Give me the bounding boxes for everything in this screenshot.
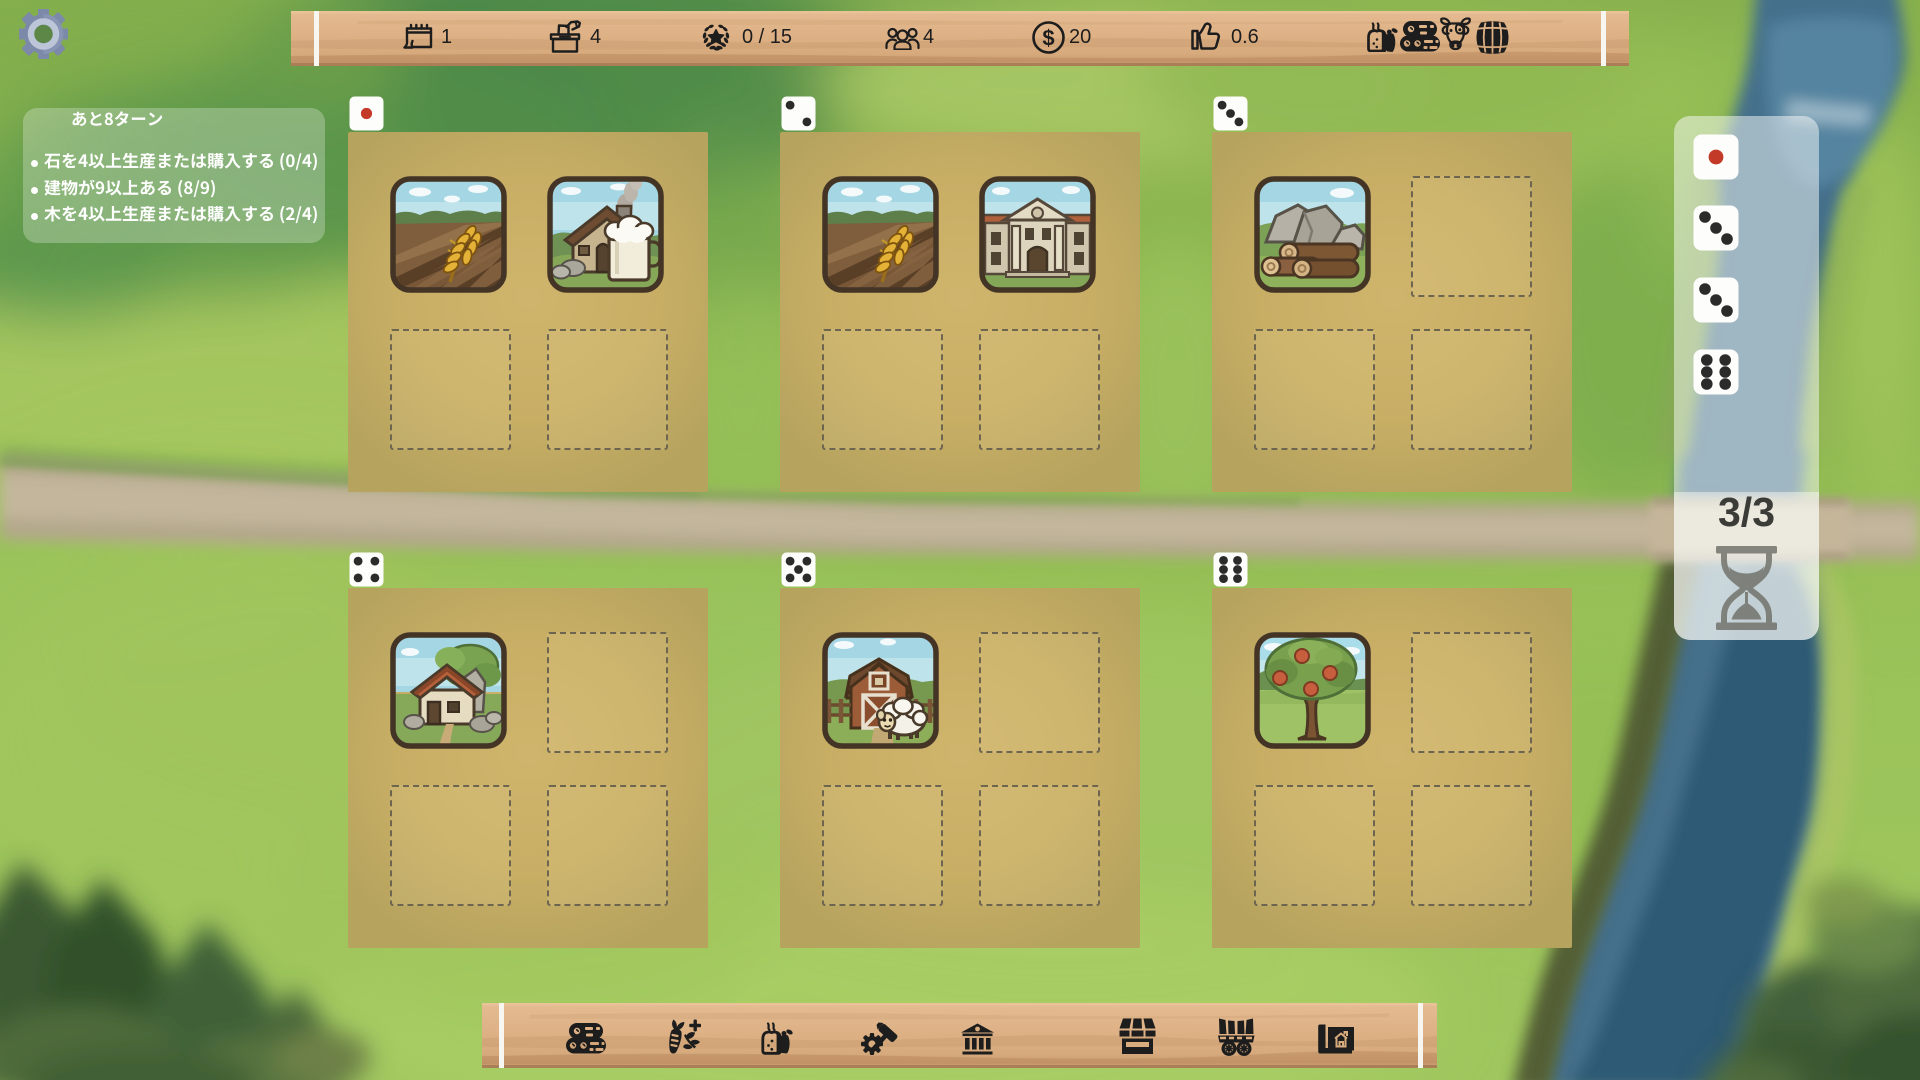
svg-text:$: $ <box>1042 26 1054 51</box>
